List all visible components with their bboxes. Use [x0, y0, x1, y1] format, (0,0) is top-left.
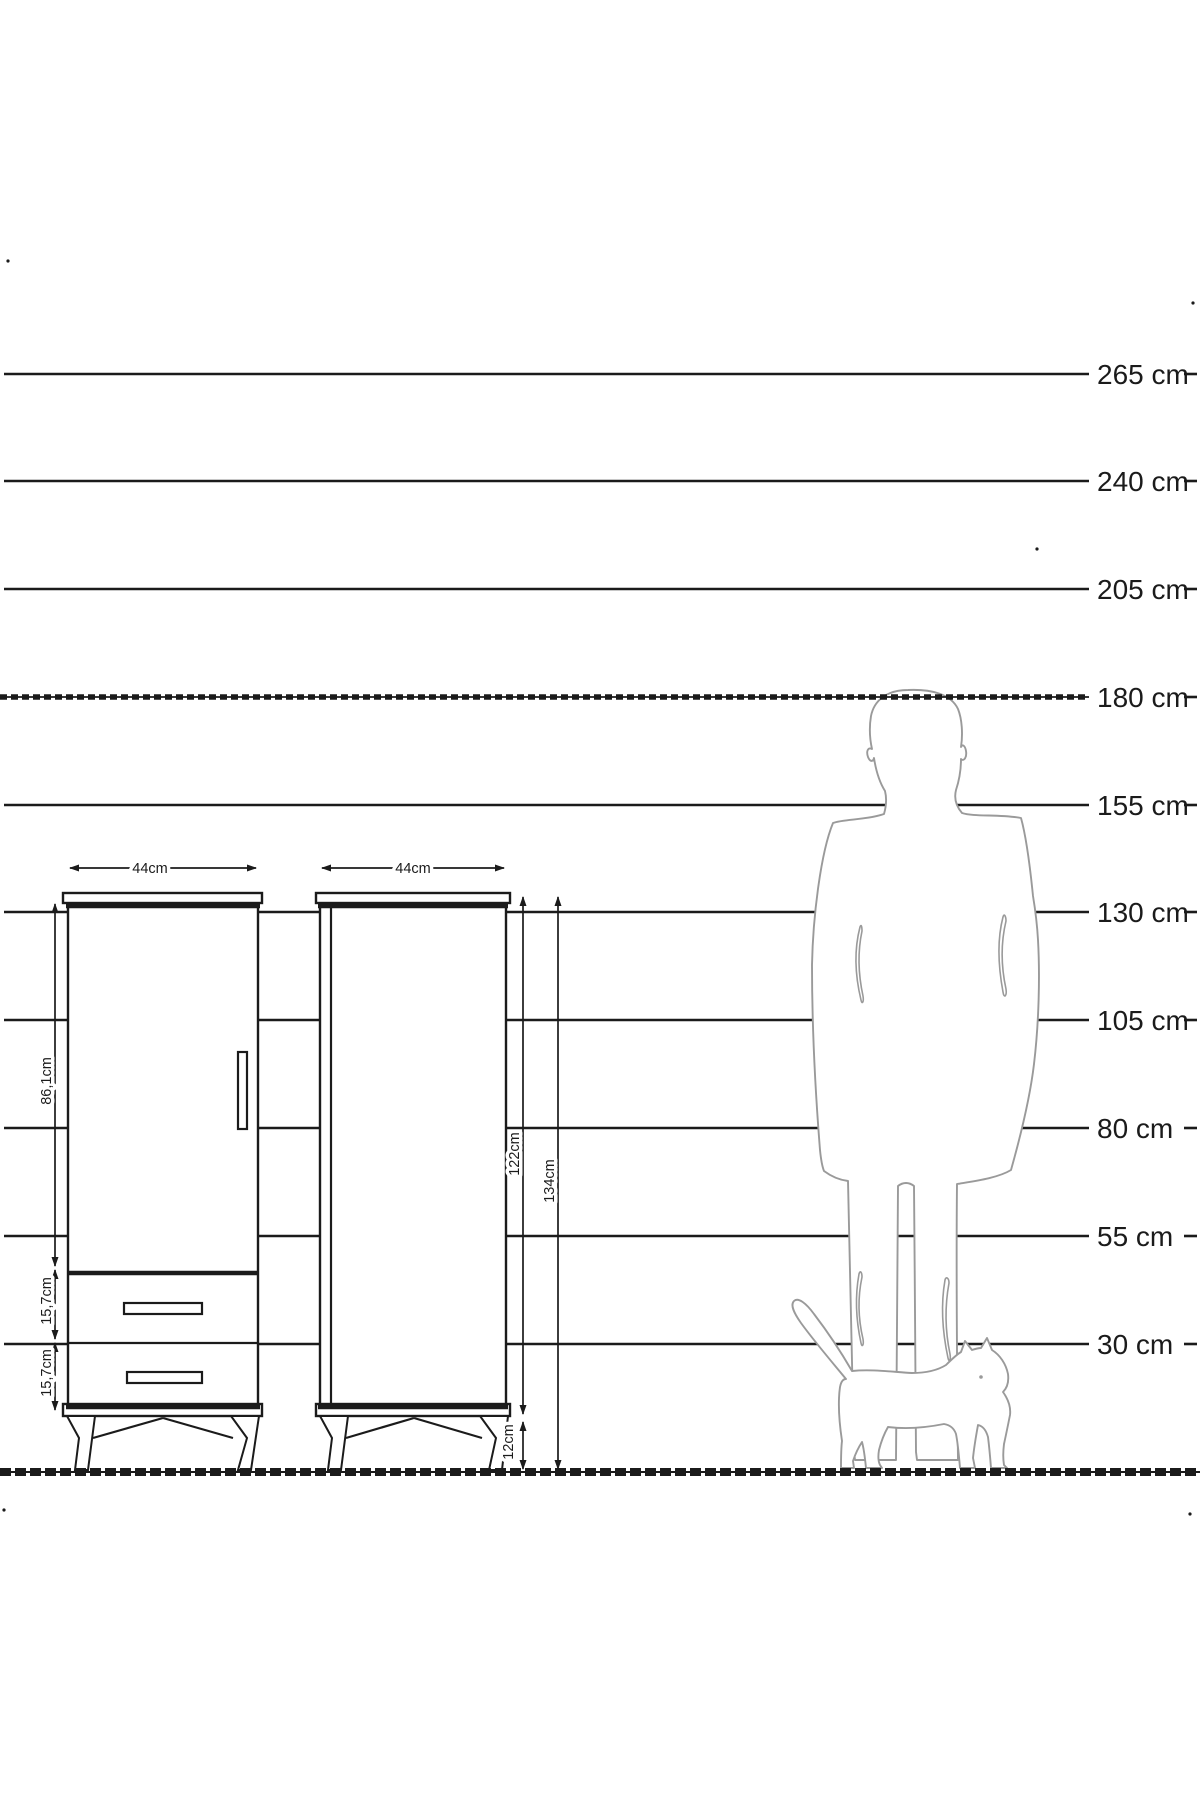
drawer-top-dim-label: 15,7cm	[39, 1277, 55, 1325]
ruler-label: 30 cm	[1097, 1329, 1173, 1360]
stray-dot	[1035, 547, 1038, 550]
stray-dot	[1191, 301, 1194, 304]
ruler-label: 80 cm	[1097, 1113, 1173, 1144]
leg-height-dim-label: 12cm	[501, 1424, 517, 1459]
ruler-label: 180 cm	[1097, 682, 1189, 713]
ruler-line-155cm: 155 cm	[4, 790, 1197, 821]
right-cabinet-leg-braces	[346, 1418, 482, 1438]
ruler-label: 240 cm	[1097, 466, 1189, 497]
ruler-label: 155 cm	[1097, 790, 1189, 821]
right-cabinet-top-board	[316, 893, 510, 903]
left-width-dim-label: 44cm	[132, 861, 167, 877]
ruler-line-180cm-label: 180 cm	[1097, 682, 1197, 713]
right-cabinet-body	[320, 901, 506, 1406]
stray-dot	[1188, 1512, 1191, 1515]
ruler-label: 130 cm	[1097, 897, 1189, 928]
right-width-dim-label: 44cm	[395, 861, 430, 877]
right-cabinet	[316, 893, 510, 1470]
total-height-dim-label: 134cm	[542, 1159, 558, 1203]
left-cabinet	[63, 893, 262, 1470]
ruler-line-205cm: 205 cm	[4, 574, 1197, 605]
cat-eye	[979, 1375, 983, 1379]
door-height-dim-label: 86,1cm	[39, 1057, 55, 1105]
furniture-scale-diagram: 265 cm 240 cm 205 cm 180 cm 155 cm 130 c…	[0, 0, 1200, 1800]
body-height-dim-label: 122cm	[507, 1132, 523, 1176]
diagram-canvas: 265 cm 240 cm 205 cm 180 cm 155 cm 130 c…	[0, 0, 1200, 1800]
cat-outline	[792, 1300, 1010, 1468]
stray-dot	[2, 1508, 5, 1511]
ruler-label: 55 cm	[1097, 1221, 1173, 1252]
ruler-label: 105 cm	[1097, 1005, 1189, 1036]
left-cabinet-top-board	[63, 893, 262, 903]
ruler-label: 205 cm	[1097, 574, 1189, 605]
left-cabinet-left-leg	[67, 1416, 95, 1470]
stray-dot	[6, 259, 9, 262]
drawer-bottom-dim-label: 15,7cm	[39, 1349, 55, 1397]
cat-silhouette	[792, 1300, 1010, 1468]
ruler-line-265cm: 265 cm	[4, 359, 1197, 390]
left-cabinet-right-leg	[231, 1416, 259, 1470]
left-cabinet-leg-braces	[93, 1418, 233, 1438]
left-cabinet-body	[68, 901, 258, 1406]
right-cabinet-left-leg	[320, 1416, 348, 1470]
ruler-line-240cm: 240 cm	[4, 466, 1197, 497]
ruler-label: 265 cm	[1097, 359, 1189, 390]
